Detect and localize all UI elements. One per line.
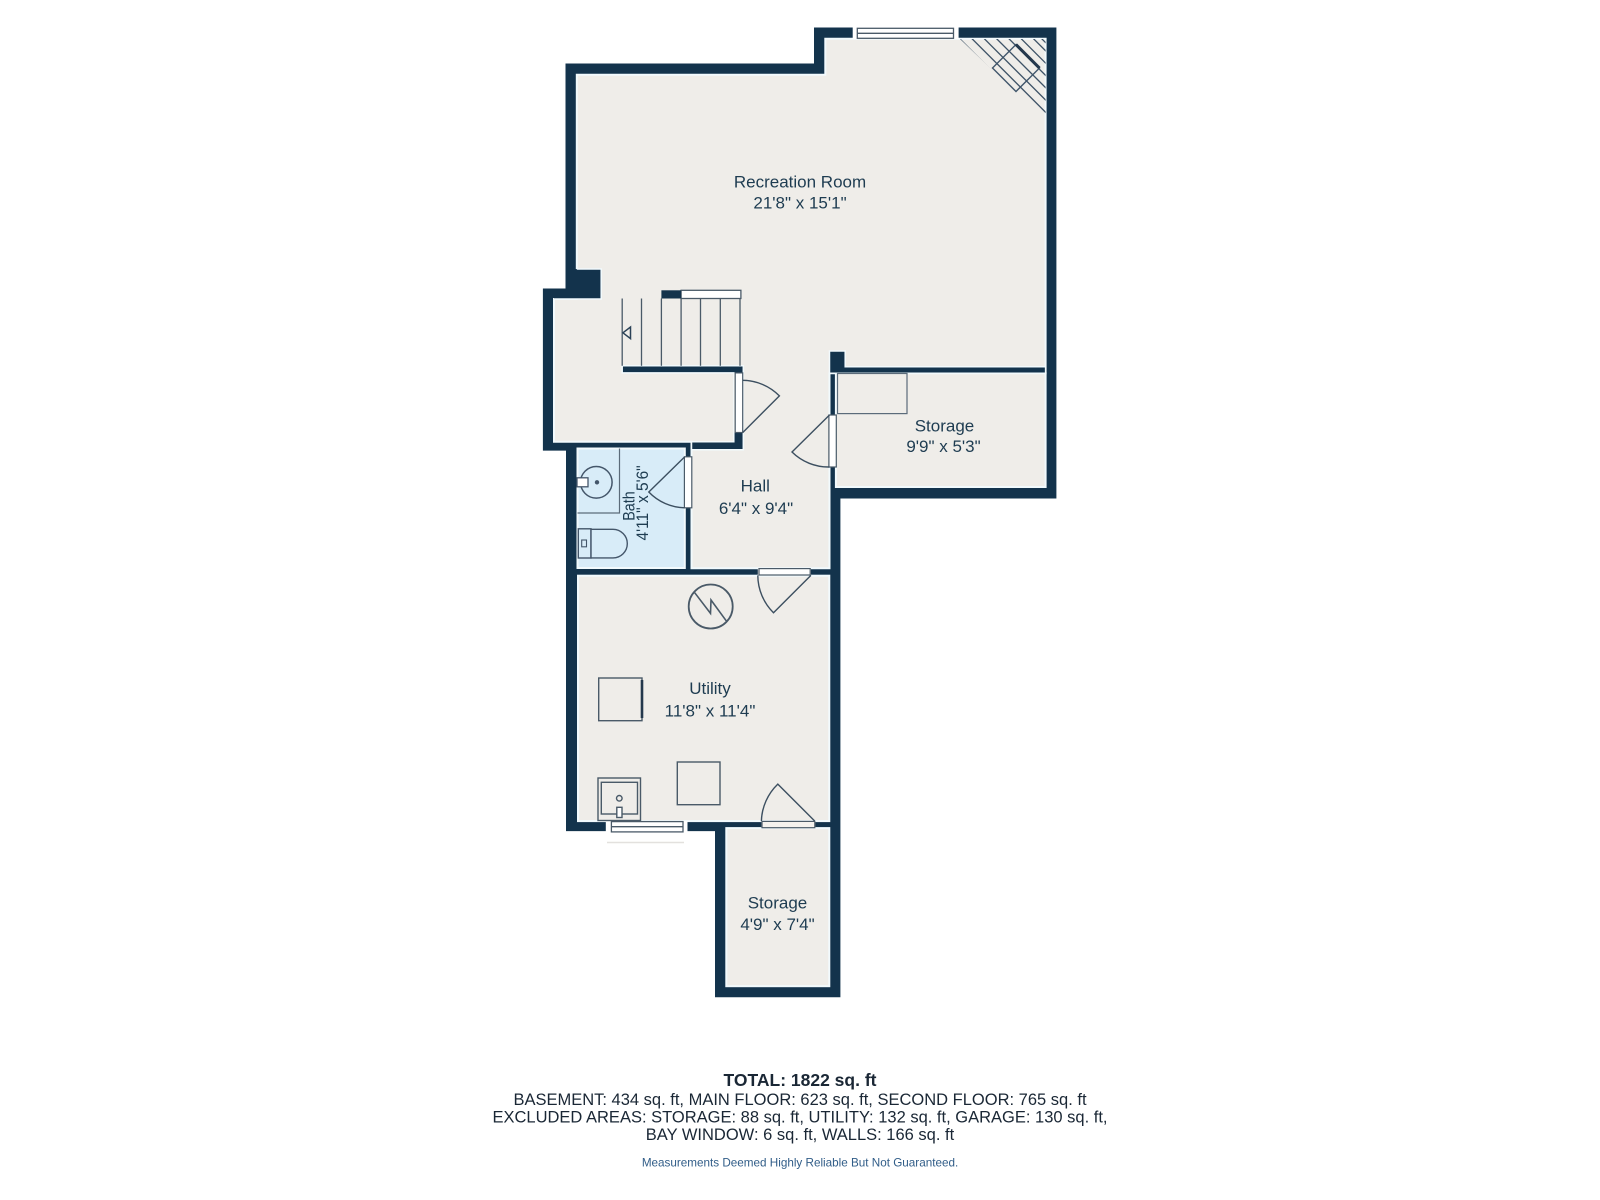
svg-text:Measurements Deemed Highly Rel: Measurements Deemed Highly Reliable But …: [642, 1157, 958, 1170]
svg-text:9'9" x 5'3": 9'9" x 5'3": [906, 437, 980, 456]
svg-text:Recreation Room: Recreation Room: [734, 173, 866, 192]
svg-text:4'11" x 5'6": 4'11" x 5'6": [633, 465, 652, 540]
svg-text:TOTAL: 1822 sq. ft: TOTAL: 1822 sq. ft: [724, 1070, 877, 1090]
svg-text:BASEMENT: 434 sq. ft, MAIN FLO: BASEMENT: 434 sq. ft, MAIN FLOOR: 623 sq…: [513, 1091, 1087, 1109]
svg-text:Storage: Storage: [915, 416, 975, 435]
svg-text:EXCLUDED AREAS: STORAGE: 88 sq: EXCLUDED AREAS: STORAGE: 88 sq. ft, UTIL…: [492, 1109, 1107, 1127]
svg-text:Storage: Storage: [748, 894, 808, 913]
svg-text:Hall: Hall: [741, 476, 770, 495]
svg-text:21'8" x 15'1": 21'8" x 15'1": [753, 194, 846, 213]
svg-text:11'8" x 11'4": 11'8" x 11'4": [665, 702, 756, 721]
svg-text:4'9" x 7'4": 4'9" x 7'4": [740, 915, 814, 934]
svg-text:BAY WINDOW: 6 sq. ft, WALLS: 1: BAY WINDOW: 6 sq. ft, WALLS: 166 sq. ft: [646, 1126, 955, 1144]
svg-text:Utility: Utility: [689, 679, 731, 698]
svg-text:6'4" x 9'4": 6'4" x 9'4": [719, 499, 793, 518]
